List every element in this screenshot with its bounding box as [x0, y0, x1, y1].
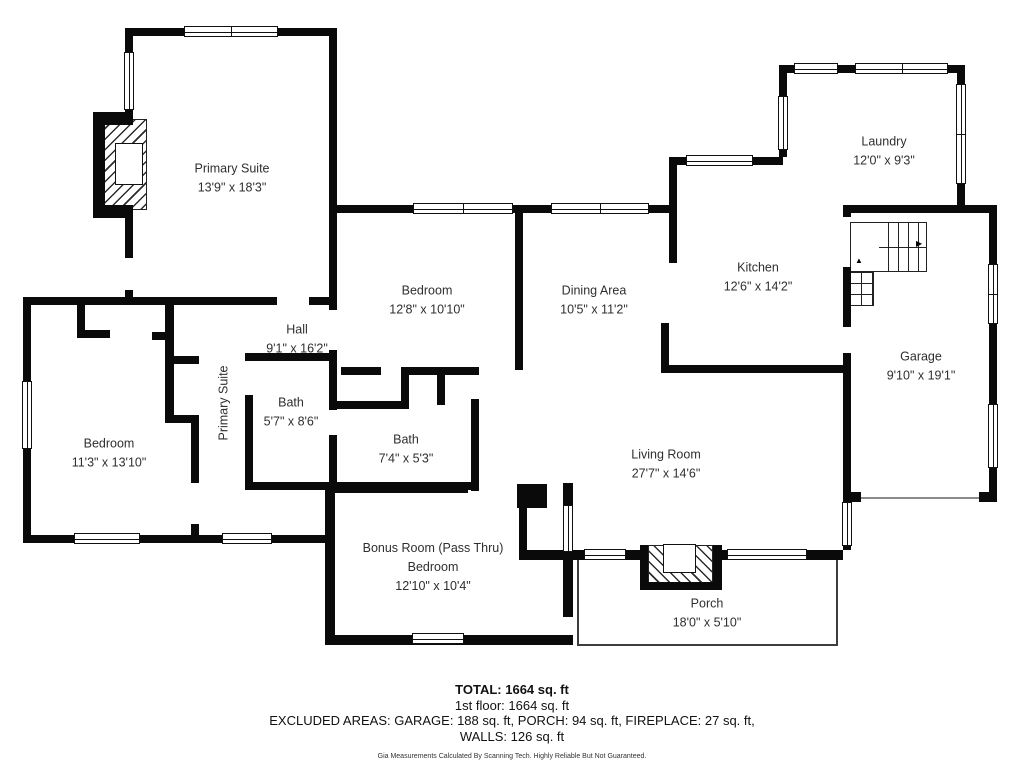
- walls-area-text: WALLS: 126 sq. ft: [0, 729, 1024, 745]
- room-label: Porch18'0" x 5'10": [673, 594, 742, 632]
- wall-segment: [843, 205, 851, 217]
- wall-segment: [401, 367, 479, 375]
- fireplace-frame: [640, 582, 722, 590]
- fireplace-frame: [93, 205, 133, 218]
- room-name: Bath: [264, 393, 319, 412]
- room-dimensions: 7'4" x 5'3": [379, 449, 434, 468]
- window: [842, 502, 852, 546]
- room-name: Garage: [887, 347, 956, 366]
- room-label: Dining Area10'5" x 11'2": [560, 281, 628, 319]
- room-name: Hall: [266, 320, 328, 339]
- wall-segment: [23, 535, 335, 543]
- wall-segment: [77, 330, 110, 338]
- wall-segment: [191, 524, 199, 543]
- room-dimensions: 12'10" x 10'4": [363, 576, 504, 595]
- window: [124, 52, 134, 110]
- window: [74, 533, 140, 544]
- room-dimensions: 10'5" x 11'2": [560, 300, 628, 319]
- room-subname: Bedroom: [363, 558, 504, 577]
- window: [551, 203, 649, 214]
- window: [222, 533, 272, 544]
- wall-segment: [517, 484, 547, 508]
- floor-plan: ▲▶Primary Suite13'9" x 18'3"Laundry12'0"…: [0, 0, 1024, 768]
- fireplace-frame: [93, 112, 133, 125]
- room-dimensions: 9'10" x 19'1": [887, 366, 956, 385]
- room-label: Bedroom12'8" x 10'10": [389, 281, 465, 319]
- wall-segment: [843, 353, 851, 502]
- wall-segment: [661, 365, 851, 373]
- wall-segment: [337, 401, 409, 409]
- room-dimensions: 12'0" x 9'3": [853, 151, 915, 170]
- fireplace-firebox: [115, 143, 143, 185]
- window: [22, 381, 32, 449]
- wall-segment: [515, 205, 523, 370]
- fireplace-firebox: [663, 544, 696, 573]
- excluded-areas-text: EXCLUDED AREAS: GARAGE: 188 sq. ft, PORC…: [0, 713, 1024, 729]
- room-name: Laundry: [853, 132, 915, 151]
- wall-segment: [329, 435, 337, 490]
- room-dimensions: 9'1" x 16'2": [266, 339, 328, 358]
- room-label: Kitchen12'6" x 14'2": [724, 258, 793, 296]
- room-label: Primary Suite: [215, 365, 234, 440]
- wall-segment: [325, 483, 335, 645]
- wall-segment: [329, 28, 337, 310]
- wall-segment: [843, 205, 997, 213]
- wall-segment: [471, 399, 479, 491]
- window: [778, 96, 788, 150]
- wall-segment: [329, 350, 337, 410]
- room-dimensions: 18'0" x 5'10": [673, 613, 742, 632]
- window: [184, 26, 278, 37]
- room-label: Bonus Room (Pass Thru)Bedroom12'10" x 10…: [363, 539, 504, 595]
- wall-segment: [325, 483, 468, 493]
- room-label: Garage9'10" x 19'1": [887, 347, 956, 385]
- wall-segment: [519, 507, 527, 552]
- room-label: Bath5'7" x 8'6": [264, 393, 319, 431]
- wall-segment: [169, 356, 199, 364]
- room-label: Bedroom11'3" x 13'10": [72, 434, 147, 472]
- stair-direction-arrow: ▶: [916, 240, 922, 248]
- room-label: Primary Suite13'9" x 18'3": [194, 159, 269, 197]
- room-name: Bedroom: [389, 281, 465, 300]
- wall-segment: [23, 297, 277, 305]
- room-dimensions: 12'8" x 10'10": [389, 300, 465, 319]
- room-name: Porch: [673, 594, 742, 613]
- staircase-lower: [850, 272, 874, 306]
- window: [988, 404, 998, 468]
- room-name: Bath: [379, 430, 434, 449]
- room-label: Laundry12'0" x 9'3": [853, 132, 915, 170]
- window: [956, 84, 966, 184]
- window: [988, 264, 998, 324]
- disclaimer-text: Gia Measurements Calculated By Scanning …: [0, 753, 1024, 760]
- wall-segment: [669, 157, 677, 263]
- wall-segment: [309, 297, 337, 305]
- wall-segment: [979, 492, 997, 502]
- room-name: Primary Suite: [194, 159, 269, 178]
- window: [584, 549, 626, 560]
- wall-segment: [245, 395, 253, 490]
- total-area-text: TOTAL: 1664 sq. ft: [0, 682, 1024, 698]
- stair-direction-arrow: ▲: [855, 257, 863, 265]
- window: [686, 155, 753, 166]
- wall-segment: [341, 367, 381, 375]
- summary-footer: TOTAL: 1664 sq. ft 1st floor: 1664 sq. f…: [0, 682, 1024, 760]
- wall-segment: [843, 267, 851, 327]
- room-dimensions: 27'7" x 14'6": [631, 464, 700, 483]
- room-name: Dining Area: [560, 281, 628, 300]
- first-floor-area-text: 1st floor: 1664 sq. ft: [0, 698, 1024, 714]
- window: [727, 549, 807, 560]
- room-dimensions: 5'7" x 8'6": [264, 412, 319, 431]
- wall-segment: [191, 415, 199, 483]
- window: [794, 63, 838, 74]
- room-name: Bonus Room (Pass Thru): [363, 539, 504, 558]
- room-name: Bedroom: [72, 434, 147, 453]
- wall-segment: [437, 375, 445, 405]
- room-label: Living Room27'7" x 14'6": [631, 445, 700, 483]
- room-name: Primary Suite: [215, 365, 234, 440]
- window: [412, 633, 464, 644]
- room-label: Bath7'4" x 5'3": [379, 430, 434, 468]
- room-label: Hall9'1" x 16'2": [266, 320, 328, 358]
- room-dimensions: 11'3" x 13'10": [72, 453, 147, 472]
- room-name: Kitchen: [724, 258, 793, 277]
- window: [563, 505, 573, 552]
- window: [413, 203, 513, 214]
- garage-door-line: [861, 497, 979, 499]
- room-name: Living Room: [631, 445, 700, 464]
- fireplace-frame: [93, 112, 105, 218]
- room-dimensions: 13'9" x 18'3": [194, 178, 269, 197]
- wall-segment: [152, 332, 167, 340]
- window: [855, 63, 948, 74]
- room-dimensions: 12'6" x 14'2": [724, 277, 793, 296]
- wall-segment: [563, 550, 573, 617]
